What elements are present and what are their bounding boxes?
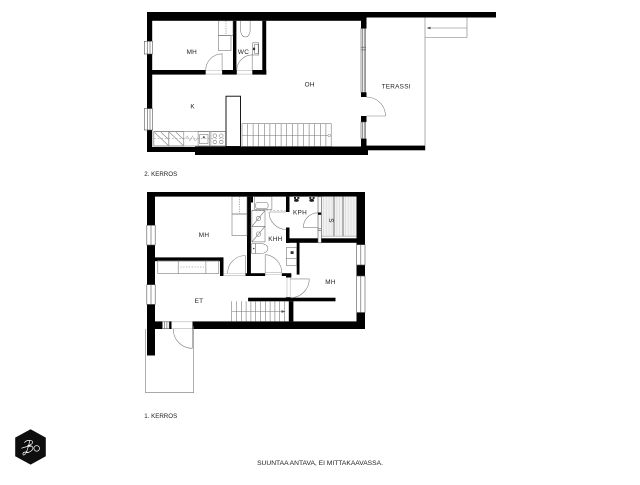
svg-text:ET: ET bbox=[195, 298, 204, 305]
svg-text:S: S bbox=[327, 218, 334, 223]
svg-text:SUUNTAA ANTAVA, EI MITTAKAAVAS: SUUNTAA ANTAVA, EI MITTAKAAVASSA. bbox=[257, 460, 383, 467]
svg-text:1. KERROS: 1. KERROS bbox=[144, 413, 177, 420]
svg-text:MH: MH bbox=[199, 232, 210, 239]
svg-text:TERASSI: TERASSI bbox=[382, 84, 411, 91]
svg-text:MH: MH bbox=[187, 49, 198, 56]
svg-text:K: K bbox=[190, 103, 195, 110]
svg-text:WC: WC bbox=[238, 49, 249, 56]
svg-text:OH: OH bbox=[305, 82, 315, 89]
svg-text:2. KERROS: 2. KERROS bbox=[144, 171, 177, 178]
svg-text:KHH: KHH bbox=[268, 236, 282, 243]
svg-text:KPH: KPH bbox=[293, 209, 307, 216]
svg-text:MH: MH bbox=[325, 279, 336, 286]
